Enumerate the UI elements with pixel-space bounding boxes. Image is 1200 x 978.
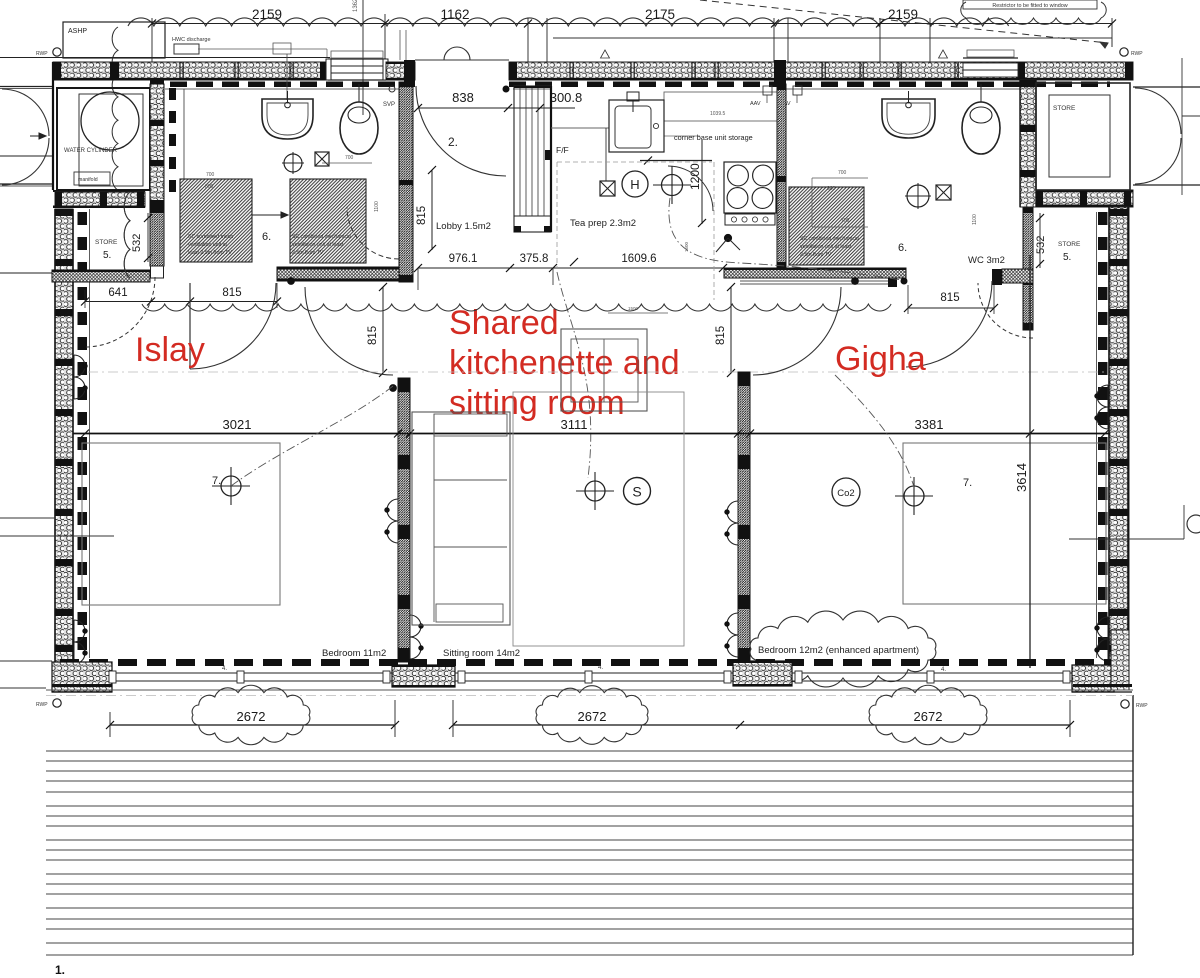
svg-text:1500: 1500 — [684, 241, 689, 252]
svg-text:1609.6: 1609.6 — [621, 253, 656, 265]
svg-text:976.1: 976.1 — [449, 253, 478, 265]
svg-text:Islay: Islay — [135, 331, 205, 369]
svg-text:815: 815 — [367, 326, 379, 345]
svg-text:S: S — [632, 484, 641, 500]
svg-text:815: 815 — [222, 287, 241, 299]
svg-text:SC combined mechanical: SC combined mechanical — [292, 234, 351, 240]
svg-text:1200: 1200 — [688, 163, 702, 190]
svg-text:Sitting room 14m2: Sitting room 14m2 — [443, 648, 520, 659]
svg-text:700: 700 — [345, 155, 354, 161]
svg-text:4.: 4. — [598, 665, 603, 671]
svg-text:Co2: Co2 — [837, 488, 854, 499]
svg-text:kitchenette and: kitchenette and — [449, 344, 680, 382]
svg-text:F/F: F/F — [556, 145, 569, 155]
svg-text:3614: 3614 — [1014, 463, 1029, 492]
svg-text:SVP: SVP — [383, 102, 395, 108]
svg-text:1362: 1362 — [353, 0, 359, 12]
svg-text:375.8: 375.8 — [520, 253, 549, 265]
svg-text:least 2.5m from TV: least 2.5m from TV — [188, 250, 232, 256]
svg-text:7.: 7. — [963, 477, 972, 489]
svg-text:Bedroom 11m2: Bedroom 11m2 — [322, 648, 386, 659]
svg-text:Lobby 1.5m2: Lobby 1.5m2 — [436, 221, 491, 232]
svg-text:Tea prep 2.3m2: Tea prep 2.3m2 — [570, 218, 636, 229]
svg-text:641: 641 — [108, 287, 127, 299]
svg-text:1039.5: 1039.5 — [710, 111, 726, 117]
svg-text:815: 815 — [715, 326, 727, 345]
svg-text:3021: 3021 — [223, 417, 252, 432]
svg-text:3381: 3381 — [915, 417, 944, 432]
svg-text:7.: 7. — [212, 475, 221, 487]
svg-text:AAV: AAV — [750, 101, 761, 107]
svg-text:2672: 2672 — [914, 709, 943, 724]
svg-text:4.: 4. — [222, 666, 227, 672]
svg-text:532: 532 — [1035, 236, 1047, 254]
svg-text:RWP: RWP — [36, 702, 48, 708]
svg-text:2.5m from TV: 2.5m from TV — [292, 250, 324, 256]
svg-text:HWC discharge: HWC discharge — [172, 37, 211, 43]
svg-text:H: H — [630, 177, 639, 192]
svg-text:SC combined mechanical: SC combined mechanical — [800, 236, 859, 242]
svg-text:ASHP: ASHP — [68, 28, 87, 35]
svg-text:700: 700 — [206, 172, 215, 178]
svg-text:sitting room: sitting room — [449, 384, 625, 422]
svg-text:ventilation unit at least: ventilation unit at least — [800, 244, 852, 250]
svg-text:6.: 6. — [898, 242, 907, 254]
svg-text:800: 800 — [827, 186, 836, 192]
svg-text:838: 838 — [452, 90, 474, 105]
svg-text:2672: 2672 — [237, 709, 266, 724]
svg-text:1500: 1500 — [628, 306, 639, 311]
svg-text:STORE: STORE — [95, 239, 118, 246]
svg-text:corner base unit storage: corner base unit storage — [674, 133, 753, 142]
svg-text:Bedroom 12m2 (enhanced apartme: Bedroom 12m2 (enhanced apartment) — [758, 645, 919, 656]
svg-text:300.8: 300.8 — [550, 90, 583, 105]
svg-text:3111: 3111 — [561, 417, 588, 432]
svg-text:800: 800 — [205, 184, 214, 190]
svg-text:4.: 4. — [941, 667, 946, 673]
svg-text:700: 700 — [841, 218, 850, 224]
svg-text:Restrictor to be fitted to win: Restrictor to be fitted to window — [992, 3, 1067, 9]
svg-text:1.: 1. — [55, 963, 65, 977]
svg-text:2.: 2. — [448, 135, 458, 149]
svg-text:2159: 2159 — [888, 7, 918, 22]
svg-text:WC 3m2: WC 3m2 — [968, 255, 1005, 266]
svg-text:1100: 1100 — [374, 201, 380, 212]
svg-text:2672: 2672 — [578, 709, 607, 724]
svg-text:2159: 2159 — [252, 7, 282, 22]
svg-text:ventilation unit at least: ventilation unit at least — [292, 242, 344, 248]
svg-text:RWP: RWP — [36, 51, 48, 57]
svg-text:WATER CYLINDER: WATER CYLINDER — [64, 148, 118, 154]
svg-text:532: 532 — [131, 234, 143, 252]
svg-text:815: 815 — [940, 292, 959, 304]
svg-text:STORE: STORE — [1058, 241, 1081, 248]
svg-text:2175: 2175 — [645, 7, 675, 22]
svg-text:815: 815 — [416, 206, 428, 225]
svg-text:1100: 1100 — [972, 214, 978, 225]
svg-text:5.: 5. — [1063, 252, 1071, 263]
svg-text:SC combined mech: SC combined mech — [188, 234, 233, 240]
svg-text:STORE: STORE — [1053, 105, 1076, 112]
svg-text:2.5m from TV: 2.5m from TV — [800, 252, 832, 258]
svg-text:700: 700 — [838, 170, 847, 176]
svg-text:5.: 5. — [103, 250, 111, 261]
svg-text:manifold: manifold — [78, 177, 98, 183]
svg-text:RWP: RWP — [1136, 703, 1148, 709]
svg-text:1162: 1162 — [440, 7, 469, 22]
svg-text:6.: 6. — [262, 231, 271, 243]
svg-text:RWP: RWP — [1131, 51, 1143, 57]
svg-text:ventilation unit at: ventilation unit at — [188, 242, 227, 248]
